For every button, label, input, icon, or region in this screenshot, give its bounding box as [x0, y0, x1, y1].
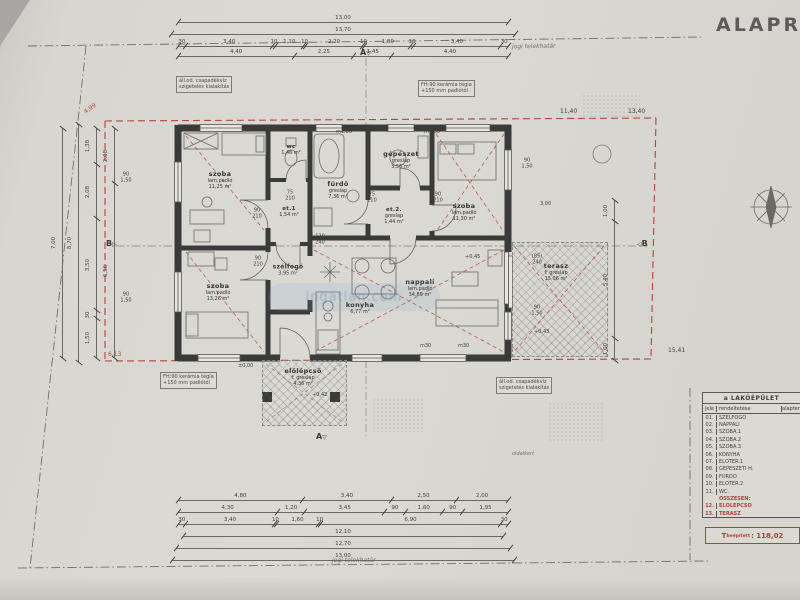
dim-segment: 4,80 [178, 492, 303, 500]
dim-segment: 1,80 [365, 38, 411, 46]
window-90-150: 901,50 [521, 158, 532, 170]
legend-row: ÖSSZESEN: [703, 495, 800, 502]
dim-bottom-total-127: 12,70 [176, 540, 510, 549]
legend-cell: 07. [703, 459, 717, 465]
dim-segment: 90 [442, 504, 463, 512]
dim-value: 6,90 [404, 517, 416, 523]
room-konyha: konyha 6,77 m² [346, 301, 374, 315]
legend-row: 13.TERASZ [703, 510, 800, 517]
dim-value: 5,40 [603, 274, 609, 286]
dim-top-total-13: 13,00 [178, 14, 508, 23]
legend-cell: ELŐTÉR.1 [717, 459, 781, 465]
section-marker-a-bottom: A▽ [316, 432, 327, 441]
dim-bottom-chain-3: 303,40101,60106,9030 [178, 516, 508, 525]
note-drain-topleft: áll.od. csapadékvíz szigetelés kialakítá… [176, 76, 232, 93]
dim-value: 4,40 [444, 49, 456, 55]
dim-value: 2,08 [85, 185, 91, 197]
built-area-total: Tbeépített: 118,02 [705, 527, 800, 544]
dim-value: 1,10 [283, 39, 295, 45]
legend-row: 10.ELŐTÉR.2 [703, 481, 800, 488]
dim-value: 3,40 [451, 39, 463, 45]
note-drain-right: áll.od. csapadékvíz szigetelés kialakítá… [496, 377, 552, 394]
dim-value: 12,10 [335, 529, 351, 535]
dim-right-chain: 1,005,401,00 [614, 200, 623, 360]
section-marker-b-left: B▷ [106, 239, 117, 248]
room-wc: wc 1,46 m² [281, 144, 301, 156]
dim-value: 1,00 [603, 205, 609, 217]
dim-value: 30 [85, 311, 91, 318]
legend-cell: 04. [703, 437, 717, 443]
dim-top-chain-1: 303,40101,10102,20101,80103,4030 [178, 38, 508, 47]
dim-segment: 3,40 [186, 38, 273, 46]
legend-cell: 11. [703, 489, 717, 495]
room-nappali: nappali lam.padló 34,85 m² [405, 278, 434, 298]
dim-value: 90 [391, 505, 398, 511]
dim-segment: 3,45 [305, 504, 385, 512]
dim-left-chain-1: 1,382,083,50301,50 [96, 128, 105, 358]
legend-col-name: rendeltetése [717, 406, 781, 412]
legend-rows: 01.SZÉLFOGÓ02.NAPPALI03.SZOBA.104.SZOBA.… [703, 414, 800, 517]
legend-cell: GÉPÉSZETI H. [717, 466, 781, 472]
dim-segment: 1,60 [405, 504, 442, 512]
room-elolepcso: előlépcső f: greslap 4,36 m² [284, 367, 321, 387]
dim-value: 3,45 [339, 505, 351, 511]
floor-plan-scan: ingatlan.com [0, 0, 800, 600]
dim-segment: 3,40 [303, 492, 391, 500]
room-eloter-1: et.1 1,54 m² [279, 206, 299, 218]
dim-value: 3,40 [224, 517, 236, 523]
dim-segment: 13,70 [171, 26, 515, 34]
dim-segment: 13,00 [178, 14, 508, 22]
dim-left-total-87: 8,70 [78, 124, 87, 362]
legend-row: 11.WC. [703, 488, 800, 495]
legend-cell: 10. [703, 481, 717, 487]
room-szoba-1: szoba lam.padló 11,25 m² [208, 170, 233, 190]
dim-value: 2,50 [417, 493, 429, 499]
legend-table: a LAKÓÉPÜLET jele rendeltetése alapterül… [702, 392, 800, 518]
legend-row: 08.GÉPÉSZETI H. [703, 466, 800, 473]
dim-value: 12,70 [335, 541, 351, 547]
dim-top-total-137: 13,70 [171, 26, 515, 35]
legend-row: 12.ELŐLÉPCSŐ [703, 503, 800, 510]
legend-row: 01.SZÉLFOGÓ [703, 414, 800, 421]
legend-row: 07.ELŐTÉR.1 [703, 458, 800, 465]
dim-segment: 3,40 [413, 38, 500, 46]
mark-m30: m30 [420, 344, 431, 350]
vegetation-stipple [582, 94, 640, 118]
door-90-210: 90210 [253, 256, 263, 268]
door-90-210: 90210 [433, 192, 443, 204]
dim-value: 1,80 [382, 39, 394, 45]
dim-segment: 4,40 [392, 48, 508, 56]
dim-segment: 6,90 [321, 516, 500, 524]
dim-value: 1,60 [291, 517, 303, 523]
dim-value: 2,08 [103, 150, 109, 162]
dim-segment: 1,50 [97, 319, 105, 358]
dim-segment: 1,60 [277, 516, 319, 524]
legend-cell: KONYHA [717, 452, 781, 458]
door-120-240: 120240 [315, 234, 325, 246]
dim-segment: 13,00 [172, 552, 514, 560]
mark-m30: m30 [458, 344, 469, 350]
dim-value: 7,00 [51, 237, 57, 249]
door-75-210: 75210 [367, 192, 377, 204]
room-szelfogo: szélfogó 3,95 m² [273, 264, 304, 277]
level-zero: ±0,00 [238, 364, 253, 370]
legend-cell: SZOBA.1 [717, 429, 781, 435]
dim-value: 13,00 [335, 553, 351, 559]
dim-bottom-total-13: 13,00 [172, 552, 514, 561]
dim-segment: 3,40 [186, 516, 274, 524]
dim-top-chain-2: 4,402,251,454,40 [178, 48, 508, 57]
note-fh-bottomleft: FH:90 kerámia tégla +150 mm padlótól [160, 372, 217, 389]
dim-value: 3,50 [85, 259, 91, 271]
dim-value: 2,00 [476, 493, 488, 499]
dim-segment: 1,10 [275, 38, 303, 46]
legend-cell: SZOBA.3 [717, 444, 781, 450]
photo-corner [0, 0, 30, 46]
dim-value: 4,40 [230, 49, 242, 55]
legend-row: 09.FÜRDŐ [703, 473, 800, 480]
room-terasz: terasz f: greslap 15,06 m² [544, 262, 569, 282]
dim-segment: 1,95 [463, 504, 508, 512]
room-eloter-2: et.2. greslap 1,44 m² [384, 207, 404, 225]
dim-segment: 2,08 [97, 164, 105, 219]
dim-1140: 11,40 [560, 109, 577, 116]
legend-cell: FÜRDŐ [717, 474, 781, 480]
section-marker-b-right: ◁B [637, 239, 648, 248]
dim-segment: 5,40 [615, 222, 623, 339]
dim-segment: 2,00 [456, 492, 508, 500]
red-dim-499: 4,99 [83, 103, 98, 116]
dim-value: 30 [501, 517, 508, 523]
door-75-210: 75210 [285, 190, 295, 202]
legend-cell: 01. [703, 415, 717, 421]
mark-m180: m1,80 [336, 130, 352, 136]
legend-row: 05.SZOBA.3 [703, 444, 800, 451]
dim-value: 8,70 [67, 237, 73, 249]
dim-value: 30 [501, 39, 508, 45]
dim-value: 4,80 [234, 493, 246, 499]
legend-col-jel: jele [703, 406, 717, 412]
legend-title: a LAKÓÉPÜLET [703, 393, 800, 404]
dim-segment: 2,50 [391, 492, 456, 500]
dim-bottom-chain-1: 4,803,402,502,00 [178, 492, 508, 501]
dim-segment: 2,20 [306, 38, 362, 46]
dim-segment: 1,00 [615, 200, 623, 222]
dim-value: 3,40 [223, 39, 235, 45]
dim-segment: 30 [97, 311, 105, 319]
terrace-hatch [512, 242, 608, 357]
dim-value: 1,60 [418, 505, 430, 511]
dim-value: 1,00 [603, 343, 609, 355]
dim-1541: 15,41 [668, 348, 685, 355]
legend-cell: 03. [703, 429, 717, 435]
section-marker-a-top: A▽ [360, 48, 371, 57]
dim-bottom-total-121: 12,10 [183, 528, 503, 537]
room-szoba-2: szoba lam.padló 11,30 m² [452, 202, 477, 222]
legend-cell: NAPPALI [717, 422, 781, 428]
dim-value: 1,38 [85, 140, 91, 152]
dim-value: 2,20 [328, 39, 340, 45]
legend-cell: ELŐTÉR.2 [717, 481, 781, 487]
boundary-label-top: jogi telekhatár [512, 44, 556, 52]
legend-cell: ÖSSZESEN: [717, 496, 781, 502]
dim-value: 6,56 [103, 265, 109, 277]
dim-value: 1,20 [285, 505, 297, 511]
room-furdo: fürdő greslap 7,36 m² [327, 180, 348, 200]
dim-segment: 8,70 [79, 124, 87, 362]
dim-segment: 1,20 [277, 504, 305, 512]
mark-m180: m1,80 [424, 130, 440, 136]
level-045: +0,45 [465, 255, 480, 261]
legend-row: 03.SZOBA.1 [703, 429, 800, 436]
dim-segment: 2,25 [294, 48, 353, 56]
legend-cell: SZÉLFOGÓ [717, 415, 781, 421]
note-fh-top: FH:90 kerámia tégla +150 mm padlótól [418, 80, 475, 97]
legend-cell: 08. [703, 466, 717, 472]
legend-cell: 13. [703, 511, 717, 517]
dim-value: 2,25 [318, 49, 330, 55]
dim-segment: 30 [500, 516, 508, 524]
dim-value: 13,00 [335, 15, 351, 21]
dim-segment: 30 [500, 38, 508, 46]
vegetation-stipple [548, 402, 604, 442]
legend-header: jele rendeltetése alapterülete [703, 404, 800, 414]
dim-value: 30 [178, 517, 185, 523]
dim-value: 90 [449, 505, 456, 511]
dim-segment: 6,56 [115, 183, 123, 358]
vegetation-stipple [372, 398, 424, 432]
page-title: ALAPRAJZ [716, 14, 800, 36]
dim-value: 13,70 [335, 27, 351, 33]
legend-cell: WC. [717, 489, 781, 495]
dim-value: 1,95 [479, 505, 491, 511]
dim-3-00: 3,00 [540, 202, 551, 208]
legend-col-area: alapterülete [781, 406, 800, 412]
legend-cell: SZOBA.2 [717, 437, 781, 443]
legend-cell: 09. [703, 474, 717, 480]
legend-cell: 06. [703, 452, 717, 458]
side-yard-label: oldalkert [512, 452, 534, 458]
dim-segment: 4,40 [178, 48, 294, 56]
legend-row: 04.SZOBA.2 [703, 436, 800, 443]
dim-segment: 12,10 [183, 528, 503, 536]
room-gepeszet: gépészet greslap 3,56 m² [383, 150, 419, 170]
room-szoba-3: szoba lam.padló 13,26 m² [206, 282, 231, 302]
legend-row: 06.KONYHA [703, 451, 800, 458]
dim-bottom-chain-2: 4,301,203,45901,60901,95 [178, 504, 508, 513]
dim-value: 3,40 [341, 493, 353, 499]
dim-segment: 12,70 [176, 540, 510, 548]
dim-value: 4,30 [221, 505, 233, 511]
dim-value: 1,50 [85, 332, 91, 344]
legend-cell: 12. [703, 503, 717, 509]
door-90-210: 90210 [252, 208, 262, 220]
dim-segment: 90 [385, 504, 406, 512]
legend-cell: ELŐLÉPCSŐ [717, 503, 781, 509]
legend-cell: 02. [703, 422, 717, 428]
dim-segment: 1,00 [615, 338, 623, 360]
legend-cell: TERASZ [717, 511, 781, 517]
dim-segment: 2,08 [115, 128, 123, 183]
dim-value: 30 [178, 39, 185, 45]
legend-cell: 05. [703, 444, 717, 450]
legend-row: 02.NAPPALI [703, 421, 800, 428]
dim-segment: 4,30 [178, 504, 277, 512]
